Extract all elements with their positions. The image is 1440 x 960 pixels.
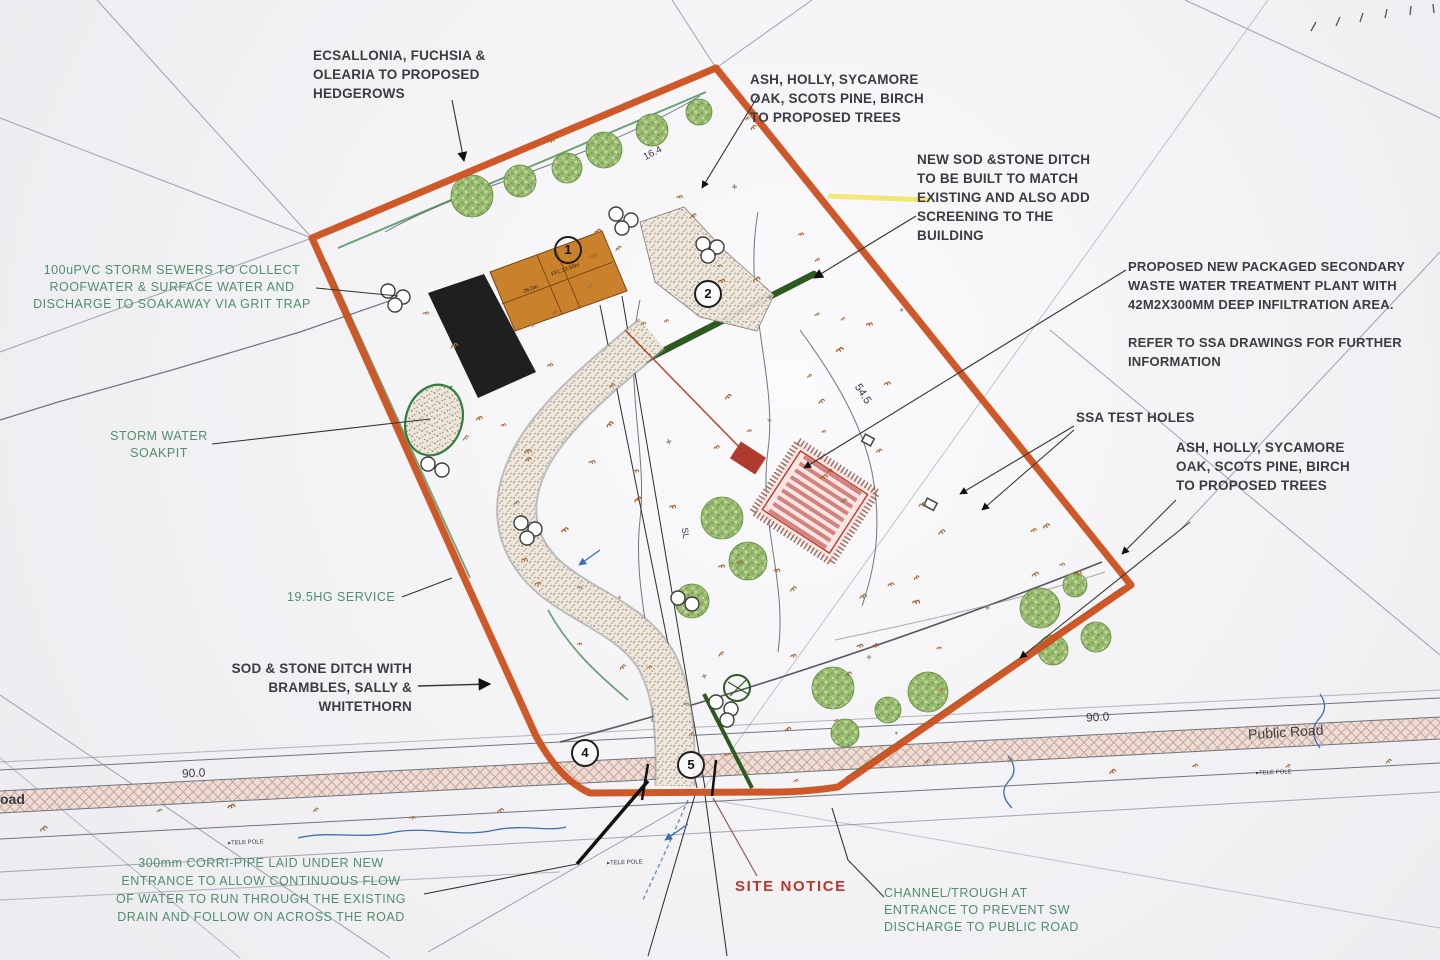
note-new-sod-stone-ditch: NEW SOD &STONE DITCH TO BE BUILT TO MATC…: [917, 150, 1090, 245]
highlight-streak: [828, 196, 930, 200]
ref-circle-entrance: 5: [677, 751, 705, 779]
storm-sewer-line: [0, 296, 399, 420]
note-hg-service: 19.5HG SERVICE: [287, 589, 395, 606]
note-treatment-plant: PROPOSED NEW PACKAGED SECONDARY WASTE WA…: [1128, 257, 1440, 371]
note-trees-right: ASH, HOLLY, SYCAMORE OAK, SCOTS PINE, BI…: [1176, 438, 1350, 495]
note-ssa-test-holes: SSA TEST HOLES: [1076, 408, 1195, 427]
ref-circle-field: 4: [571, 739, 599, 767]
site-plan-sheet: 26.0m FFL 23.50m: [0, 0, 1440, 960]
ref-circle-building: 1: [554, 236, 582, 264]
label-tele-pole-1: ▸TELE POLE: [228, 838, 264, 846]
label-tele-pole-3: ▸TELE POLE: [1256, 768, 1292, 776]
treatment-plant: [730, 441, 766, 474]
note-sod-stone-ditch: SOD & STONE DITCH WITH BRAMBLES, SALLY &…: [198, 659, 412, 716]
boundary-tick-marks: [1311, 4, 1434, 31]
note-storm-sewers: 100uPVC STORM SEWERS TO COLLECT ROOFWATE…: [24, 262, 320, 313]
ref-circle-yard: 2: [694, 280, 722, 308]
note-storm-soakpit: STORM WATER SOAKPIT: [106, 428, 212, 462]
note-channel-trough: CHANNEL/TROUGH AT ENTRANCE TO PREVENT SW…: [884, 885, 1079, 936]
note-corri-pipe: 300mm CORRI-PIPE LAID UNDER NEW ENTRANCE…: [102, 854, 420, 926]
label-tele-pole-2: ▸TELE POLE: [607, 858, 643, 866]
note-site-notice: SITE NOTICE: [735, 877, 847, 896]
label-sight-line: SL: [680, 527, 692, 540]
note-trees-top: ASH, HOLLY, SYCAMORE OAK, SCOTS PINE, BI…: [750, 70, 924, 127]
infiltration-area: [753, 441, 878, 563]
note-hedgerows: ECSALLONIA, FUCHSIA & OLEARIA TO PROPOSE…: [313, 46, 485, 103]
road-surface: [0, 717, 1440, 813]
waste-pipe-line: [625, 330, 744, 452]
label-road-left: oad: [0, 791, 25, 807]
water-lines: [298, 550, 1325, 902]
label-90-right: 90.0: [1086, 709, 1110, 724]
label-90-left: 90.0: [182, 765, 206, 780]
